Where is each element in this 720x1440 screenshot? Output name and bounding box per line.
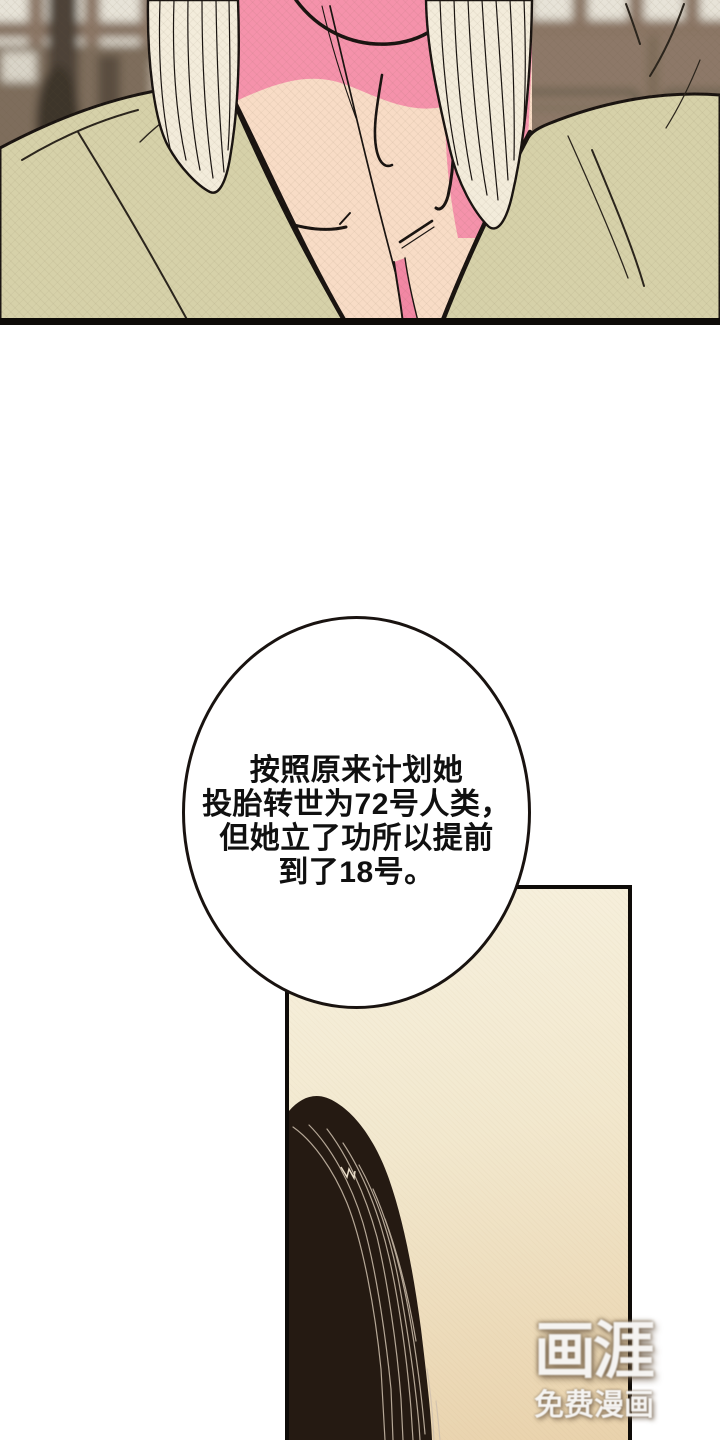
watermark: 画涯 免费漫画: [534, 1320, 654, 1422]
speech-line: 到了18号。: [185, 856, 528, 890]
huaya-logo: 画涯: [534, 1320, 654, 1384]
panel-border-bottom: [0, 318, 720, 325]
speech-line: 但她立了功所以提前: [185, 822, 528, 856]
texture-overlay: [0, 0, 720, 325]
top-panel-illustration: [0, 0, 720, 325]
speech-bubble: 按照原来计划她 投胎转世为72号人类， 但她立了功所以提前 到了18号。: [182, 616, 531, 1009]
black-hair-mass: [289, 1096, 440, 1440]
top-artwork-panel: [0, 0, 720, 325]
watermark-subtitle: 免费漫画: [534, 1390, 654, 1422]
speech-line: 按照原来计划她: [185, 754, 528, 788]
speech-bubble-text: 按照原来计划她 投胎转世为72号人类， 但她立了功所以提前 到了18号。: [185, 619, 528, 890]
comic-page: 按照原来计划她 投胎转世为72号人类， 但她立了功所以提前 到了18号。 画涯 …: [0, 0, 720, 1440]
speech-line: 投胎转世为72号人类，: [185, 788, 528, 822]
